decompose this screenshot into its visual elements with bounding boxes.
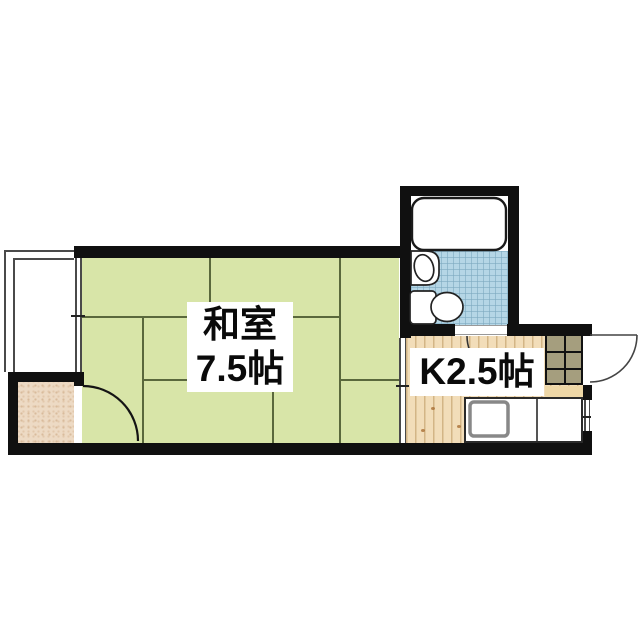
washitsu-label: 和室 7.5帖 xyxy=(187,302,293,392)
wood-knot xyxy=(421,429,425,432)
wall-bath-bottom xyxy=(400,324,455,336)
door-threshold xyxy=(455,325,507,326)
kitchen-size: K2.5帖 xyxy=(419,348,534,396)
door-threshold xyxy=(455,334,507,335)
tatami-line xyxy=(339,379,399,381)
entrance-step xyxy=(545,386,583,398)
kitchen-partition xyxy=(405,338,407,443)
wall-storage-left xyxy=(8,372,18,443)
tatami-line xyxy=(339,258,341,443)
balcony-rail xyxy=(13,258,74,260)
washitsu-size: 7.5帖 xyxy=(196,347,284,391)
wall-storage-top xyxy=(8,372,77,382)
wall-left-block xyxy=(74,372,84,386)
kitchen-partition xyxy=(399,338,401,443)
wall-top xyxy=(74,246,411,258)
storage-floor xyxy=(18,382,74,443)
wall-bath-right xyxy=(508,186,519,325)
bathroom-tile-floor xyxy=(411,251,508,325)
window-center-tick xyxy=(396,385,409,387)
floor-plan: 和室 7.5帖 K2.5帖 xyxy=(0,0,640,640)
wall-bottom xyxy=(8,443,592,455)
washitsu-name: 和室 xyxy=(203,303,277,347)
kitchen-label: K2.5帖 xyxy=(410,348,544,396)
entrance-door xyxy=(590,335,637,382)
wood-knot xyxy=(457,425,461,428)
window-center-tick xyxy=(582,416,591,418)
wall-right-block xyxy=(583,431,592,443)
balcony-rail xyxy=(13,258,15,372)
wall-bath-left xyxy=(400,186,411,338)
wood-knot xyxy=(431,407,435,410)
entrance-tile-floor xyxy=(545,334,583,385)
wall-right-block xyxy=(583,385,592,400)
wall-bath-bottom xyxy=(507,324,592,336)
balcony-rail xyxy=(4,250,6,372)
balcony-rail xyxy=(4,250,74,252)
wall-bath-top xyxy=(400,186,519,196)
window-center-tick xyxy=(71,315,85,317)
